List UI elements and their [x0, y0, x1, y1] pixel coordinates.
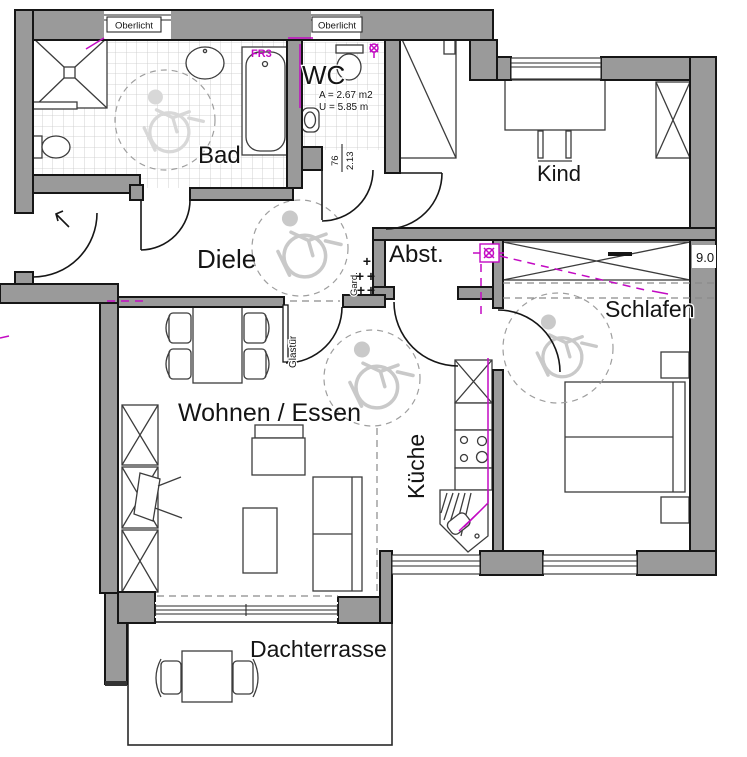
room-label-schlafen: Schlafen: [605, 296, 695, 322]
svg-text:+: +: [367, 282, 375, 298]
desk-kind: [505, 80, 605, 161]
coffee-table: [243, 508, 277, 573]
room-label-kueche: Küche: [403, 434, 429, 499]
shower: [33, 38, 107, 108]
right-dimension: 9.0: [692, 245, 716, 268]
window-kueche: [392, 555, 480, 574]
room-label-kind: Kind: [537, 161, 581, 186]
kitchen-units: [455, 360, 492, 490]
door-kind: [386, 173, 442, 229]
stove: [455, 430, 492, 468]
bathtub: [242, 47, 289, 155]
wc-area-label: A = 2.67 m2: [319, 90, 373, 101]
floor-plan: Oberlicht Oberlicht: [0, 0, 747, 757]
glastuer-label: Glastür: [288, 335, 299, 368]
skylight-window-1: Oberlicht: [104, 11, 171, 39]
door-bad: [141, 200, 190, 250]
wall-end-cap: [105, 681, 127, 686]
sink-bad: [186, 47, 224, 79]
door-abst: [394, 302, 458, 366]
sofa: [313, 477, 362, 591]
skylight-window-2: Oberlicht: [311, 11, 362, 39]
svg-text:+: +: [357, 282, 365, 298]
toilet-bad: [33, 136, 70, 158]
entrance-door: [33, 211, 97, 277]
bed-schlafen: [565, 382, 685, 492]
nightstand-bottom: [661, 497, 689, 523]
room-label-diele: Diele: [197, 244, 256, 274]
floor-plan-page: Oberlicht Oberlicht: [0, 0, 747, 757]
room-label-bad: Bad: [198, 142, 241, 169]
nightstand-top: [661, 352, 689, 378]
window-kind: [511, 58, 601, 79]
svg-text:9.0: 9.0: [696, 250, 714, 265]
dining-table-group: [166, 307, 269, 383]
door-wc: [322, 170, 373, 221]
wardrobe-schlafen: [503, 242, 690, 280]
oberlicht-label: Oberlicht: [115, 21, 153, 32]
kitchen-sink: [440, 490, 488, 552]
svg-text:+: +: [363, 253, 371, 269]
window-schlafen: [543, 555, 637, 574]
sink-wc: [302, 108, 319, 132]
oberlicht-label: Oberlicht: [318, 21, 356, 32]
room-label-wc: WC: [302, 60, 345, 90]
terrace-table: [182, 651, 232, 702]
fr3-label: FR3: [251, 48, 272, 60]
grab-rail: [33, 102, 77, 109]
room-label-dachterrasse: Dachterrasse: [250, 636, 387, 662]
armchair: [252, 425, 305, 475]
wardrobe-kind: [656, 82, 690, 158]
terrace-sliding-door: [155, 602, 338, 618]
svg-text:76: 76: [330, 155, 341, 166]
wc-perimeter-label: U = 5.85 m: [319, 102, 368, 113]
room-label-abst: Abst.: [389, 241, 444, 268]
wheelchair-icon: [517, 303, 600, 387]
bed-kind: [400, 35, 456, 158]
turning-circle-diele: [252, 200, 348, 296]
svg-text:2.13: 2.13: [345, 152, 356, 171]
room-label-wohnen: Wohnen / Essen: [178, 399, 361, 427]
